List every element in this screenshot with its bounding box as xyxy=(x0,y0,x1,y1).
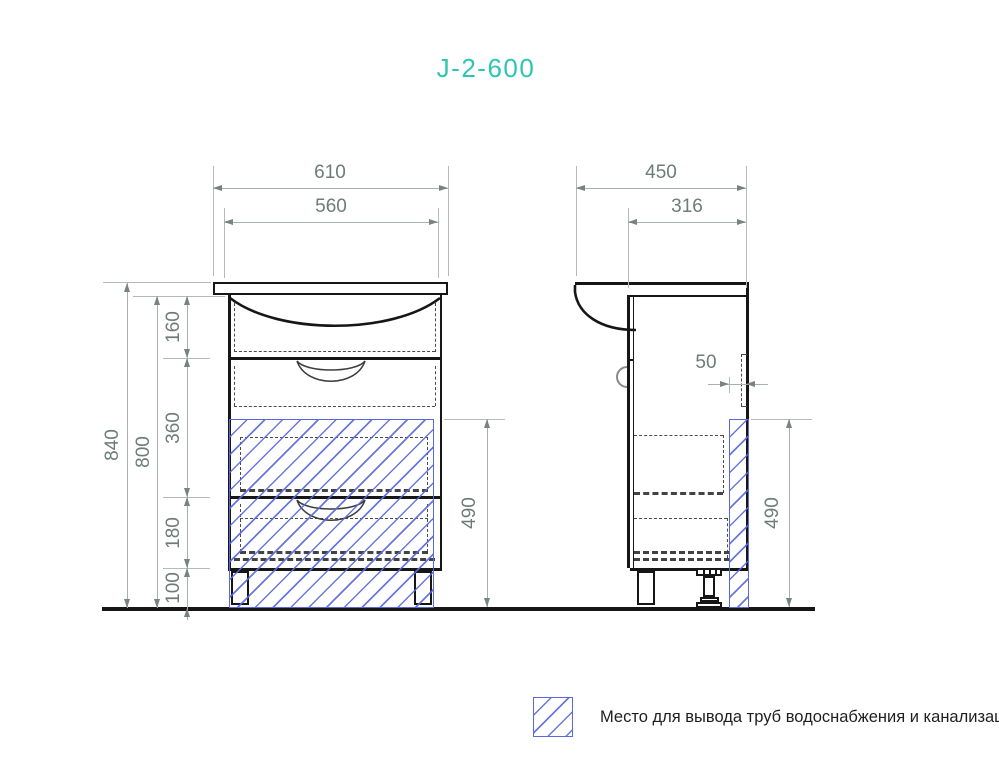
drawer-handle-arc xyxy=(297,361,365,381)
dim-arrow xyxy=(124,283,130,292)
dim-label-360: 360 xyxy=(163,398,183,458)
dim-line-316 xyxy=(628,222,746,223)
dim-arrow xyxy=(224,219,233,225)
dim-label-450: 450 xyxy=(621,162,701,184)
sink-side-profile xyxy=(575,285,636,330)
dim-arrow xyxy=(746,381,755,387)
dim-arrow xyxy=(429,219,438,225)
dim-arrow xyxy=(184,296,190,305)
dim-arrow xyxy=(786,419,792,428)
dim-arrow xyxy=(737,219,746,225)
extension-line xyxy=(751,419,812,420)
dim-line-560 xyxy=(224,222,438,223)
dim-arrow xyxy=(184,497,190,506)
dim-arrow xyxy=(484,419,490,428)
dim-label-490-side: 490 xyxy=(762,483,782,543)
dim-arrow xyxy=(184,349,190,358)
pipe-zone-hatch-side xyxy=(729,419,749,608)
dim-arrow xyxy=(184,608,190,617)
dim-label-610: 610 xyxy=(290,162,370,184)
dim-label-160: 160 xyxy=(163,297,183,357)
dim-label-560: 560 xyxy=(291,196,371,218)
dim-arrow xyxy=(720,381,729,387)
technical-drawing-canvas: J-2-600 xyxy=(0,0,999,769)
legend-label: Место для вывода труб водоснабжения и ка… xyxy=(600,708,999,727)
extension-line xyxy=(576,166,577,276)
dim-arrow xyxy=(576,185,585,191)
curves-layer xyxy=(0,0,999,769)
dim-arrow xyxy=(184,568,190,577)
dim-arrow xyxy=(786,598,792,607)
dim-label-180: 180 xyxy=(163,503,183,563)
dim-label-800: 800 xyxy=(133,422,153,482)
dim-arrow xyxy=(484,598,490,607)
dim-arrow xyxy=(184,488,190,497)
dim-arrow xyxy=(439,185,448,191)
dim-arrow xyxy=(124,599,130,608)
sink-basin-curve xyxy=(230,298,440,326)
pipe-zone-hatch-front xyxy=(229,419,434,608)
legend-hatch-swatch xyxy=(533,697,573,737)
dim-arrow xyxy=(184,358,190,367)
dim-label-50: 50 xyxy=(684,352,728,374)
dim-arrow xyxy=(628,219,637,225)
dim-arrow xyxy=(213,185,222,191)
extension-line xyxy=(103,282,211,283)
dim-label-100: 100 xyxy=(163,558,183,618)
dim-arrow xyxy=(737,185,746,191)
dim-label-490-front: 490 xyxy=(459,483,479,543)
dim-line-800 xyxy=(157,296,158,608)
dim-label-316: 316 xyxy=(647,196,727,218)
dim-arrow xyxy=(154,296,160,305)
dim-arrow xyxy=(184,559,190,568)
handle-side-profile xyxy=(617,367,627,387)
extension-line xyxy=(448,166,449,276)
dim-line-840 xyxy=(127,283,128,608)
dim-line-50 xyxy=(708,384,768,385)
dim-line-490-side xyxy=(789,419,790,607)
dim-label-840: 840 xyxy=(102,415,122,475)
extension-line xyxy=(213,166,214,276)
extension-line xyxy=(444,419,505,420)
dim-line-610 xyxy=(213,188,448,189)
dim-line-490-front xyxy=(487,419,488,607)
drawer-handle-arc xyxy=(297,361,365,370)
dim-line-450 xyxy=(576,188,746,189)
dim-arrow xyxy=(154,599,160,608)
